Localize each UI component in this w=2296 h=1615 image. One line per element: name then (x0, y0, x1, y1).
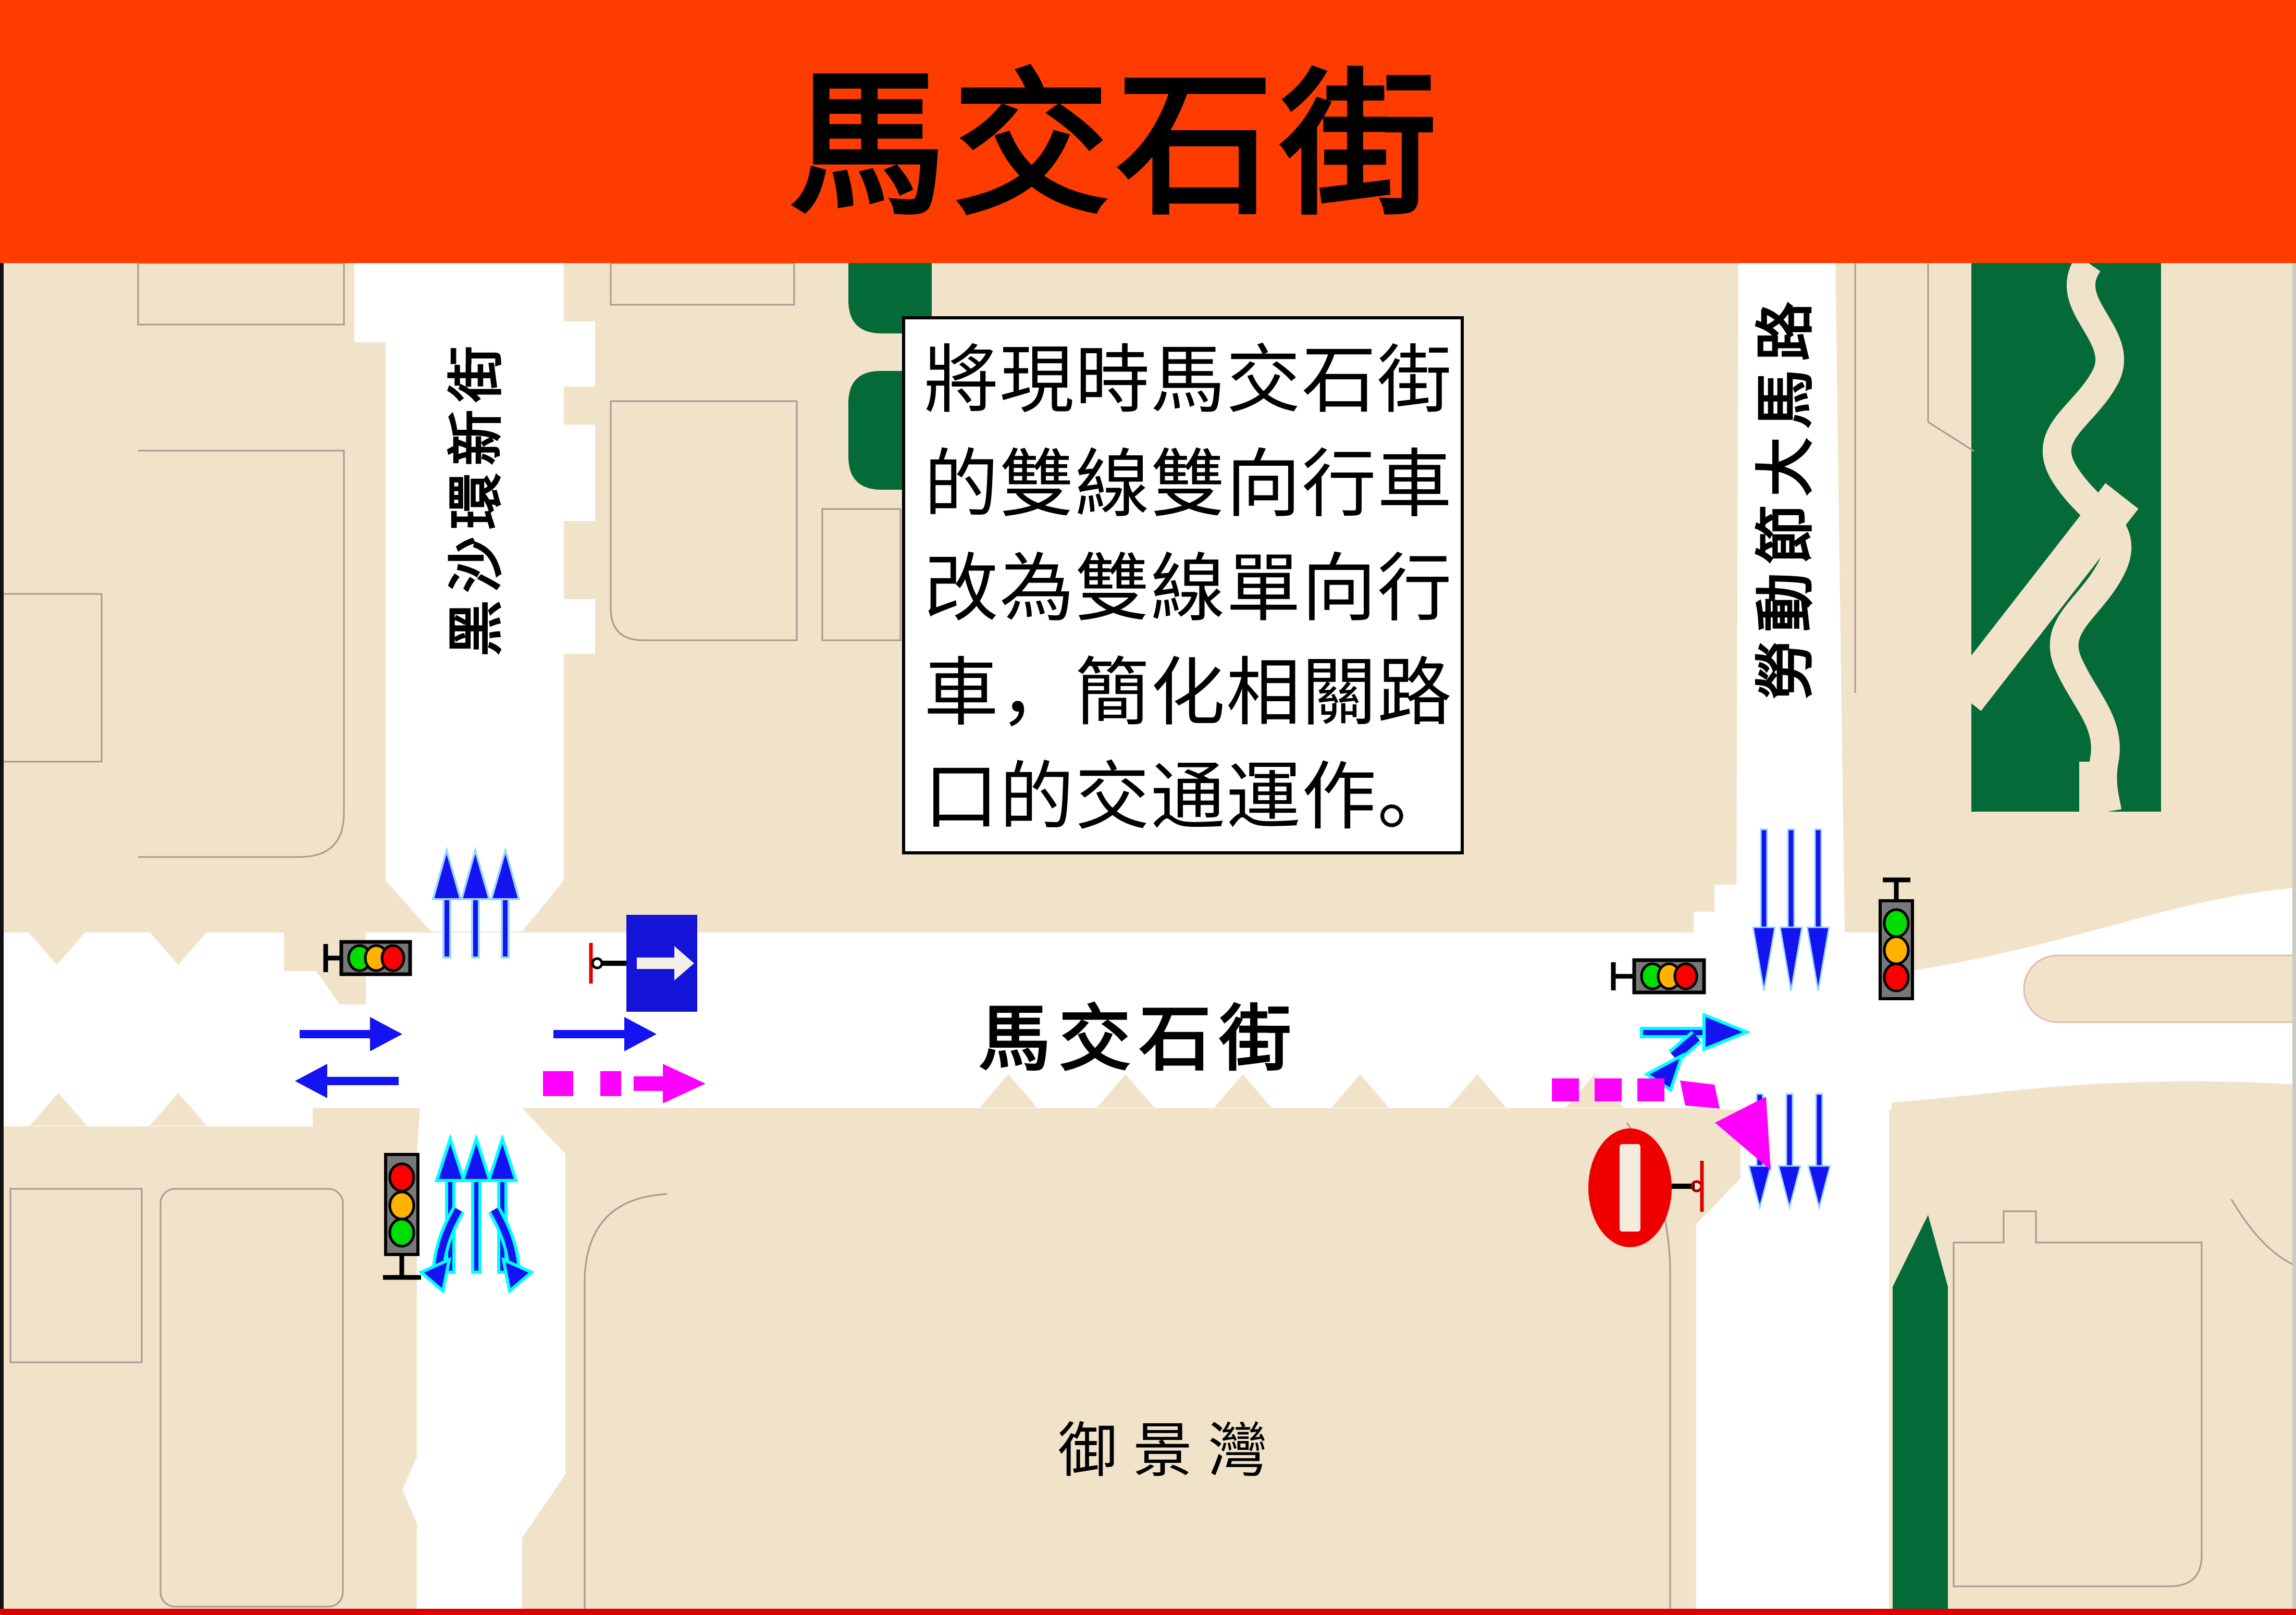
arrow-shaft (1786, 1094, 1793, 1168)
arrow-shaft (502, 895, 509, 958)
arrow-shaft (300, 1030, 370, 1038)
title-banner: 馬交石街 (0, 0, 2296, 263)
horizontal-road-west-widening (0, 933, 313, 1126)
map-bottom-border (0, 1609, 2296, 1615)
dash (1595, 1078, 1622, 1101)
arrow-shaft (327, 1077, 399, 1085)
arrow-shaft (472, 895, 479, 958)
dash (1637, 1078, 1664, 1101)
median-island (2024, 955, 2296, 1022)
arrow-shaft (553, 1030, 624, 1038)
street-label-right-road: 勞動節大馬路 (1741, 132, 1819, 861)
note-line: 改為雙線單向行 (924, 537, 1461, 641)
district-label: 御景灣 (1058, 1402, 1283, 1488)
road-notch (564, 599, 595, 654)
dash-tilted (1680, 1080, 1720, 1109)
traffic-scheme-map: 馬交石街 將現時馬交石街 的雙線雙向行車 改為雙線單向行 車，簡化相關路 口的交… (0, 0, 2296, 1615)
map-right-border (2292, 263, 2296, 1615)
arrow-shaft (473, 1178, 480, 1272)
street-label-central-road: 馬交石街 (979, 980, 1300, 1085)
note-line: 將現時馬交石街 (924, 329, 1461, 433)
map-left-border (0, 263, 4, 1615)
note-line: 的雙線雙向行車 (924, 433, 1461, 537)
dash (600, 1071, 621, 1096)
road-notch (564, 425, 595, 521)
up-arrows-left-road-north (433, 850, 519, 958)
street-label-left-road: 黑沙環新街 (433, 133, 511, 862)
road-notch (564, 321, 595, 387)
dash (543, 1071, 573, 1096)
dash (634, 1076, 664, 1091)
arrow-shaft (1816, 1094, 1822, 1168)
green-strip-south (1893, 1215, 1948, 1611)
note-box: 將現時馬交石街 的雙線雙向行車 改為雙線單向行 車，簡化相關路 口的交通運作。 (902, 316, 1464, 854)
road-notch (354, 263, 387, 342)
note-line: 車，簡化相關路 (924, 641, 1461, 746)
note-line: 口的交通運作。 (924, 746, 1461, 850)
arrow-shaft (443, 895, 450, 958)
park-gap (2079, 762, 2099, 813)
dash (1552, 1078, 1579, 1101)
page-title: 馬交石街 (789, 19, 1444, 245)
